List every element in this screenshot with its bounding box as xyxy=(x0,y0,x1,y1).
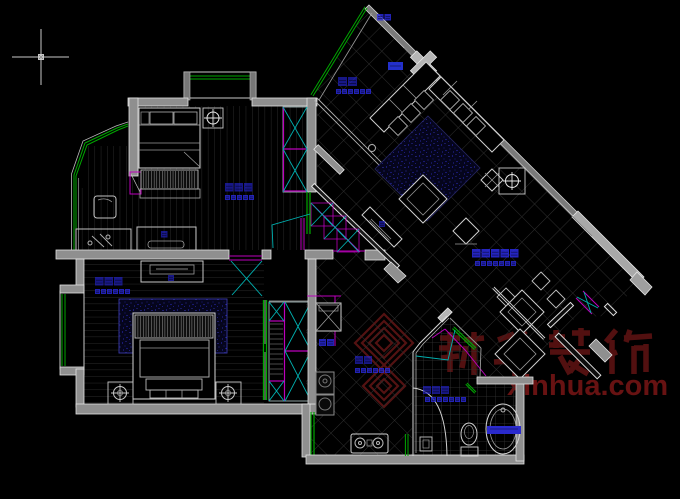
svg-text:xinhua.com: xinhua.com xyxy=(507,370,668,402)
